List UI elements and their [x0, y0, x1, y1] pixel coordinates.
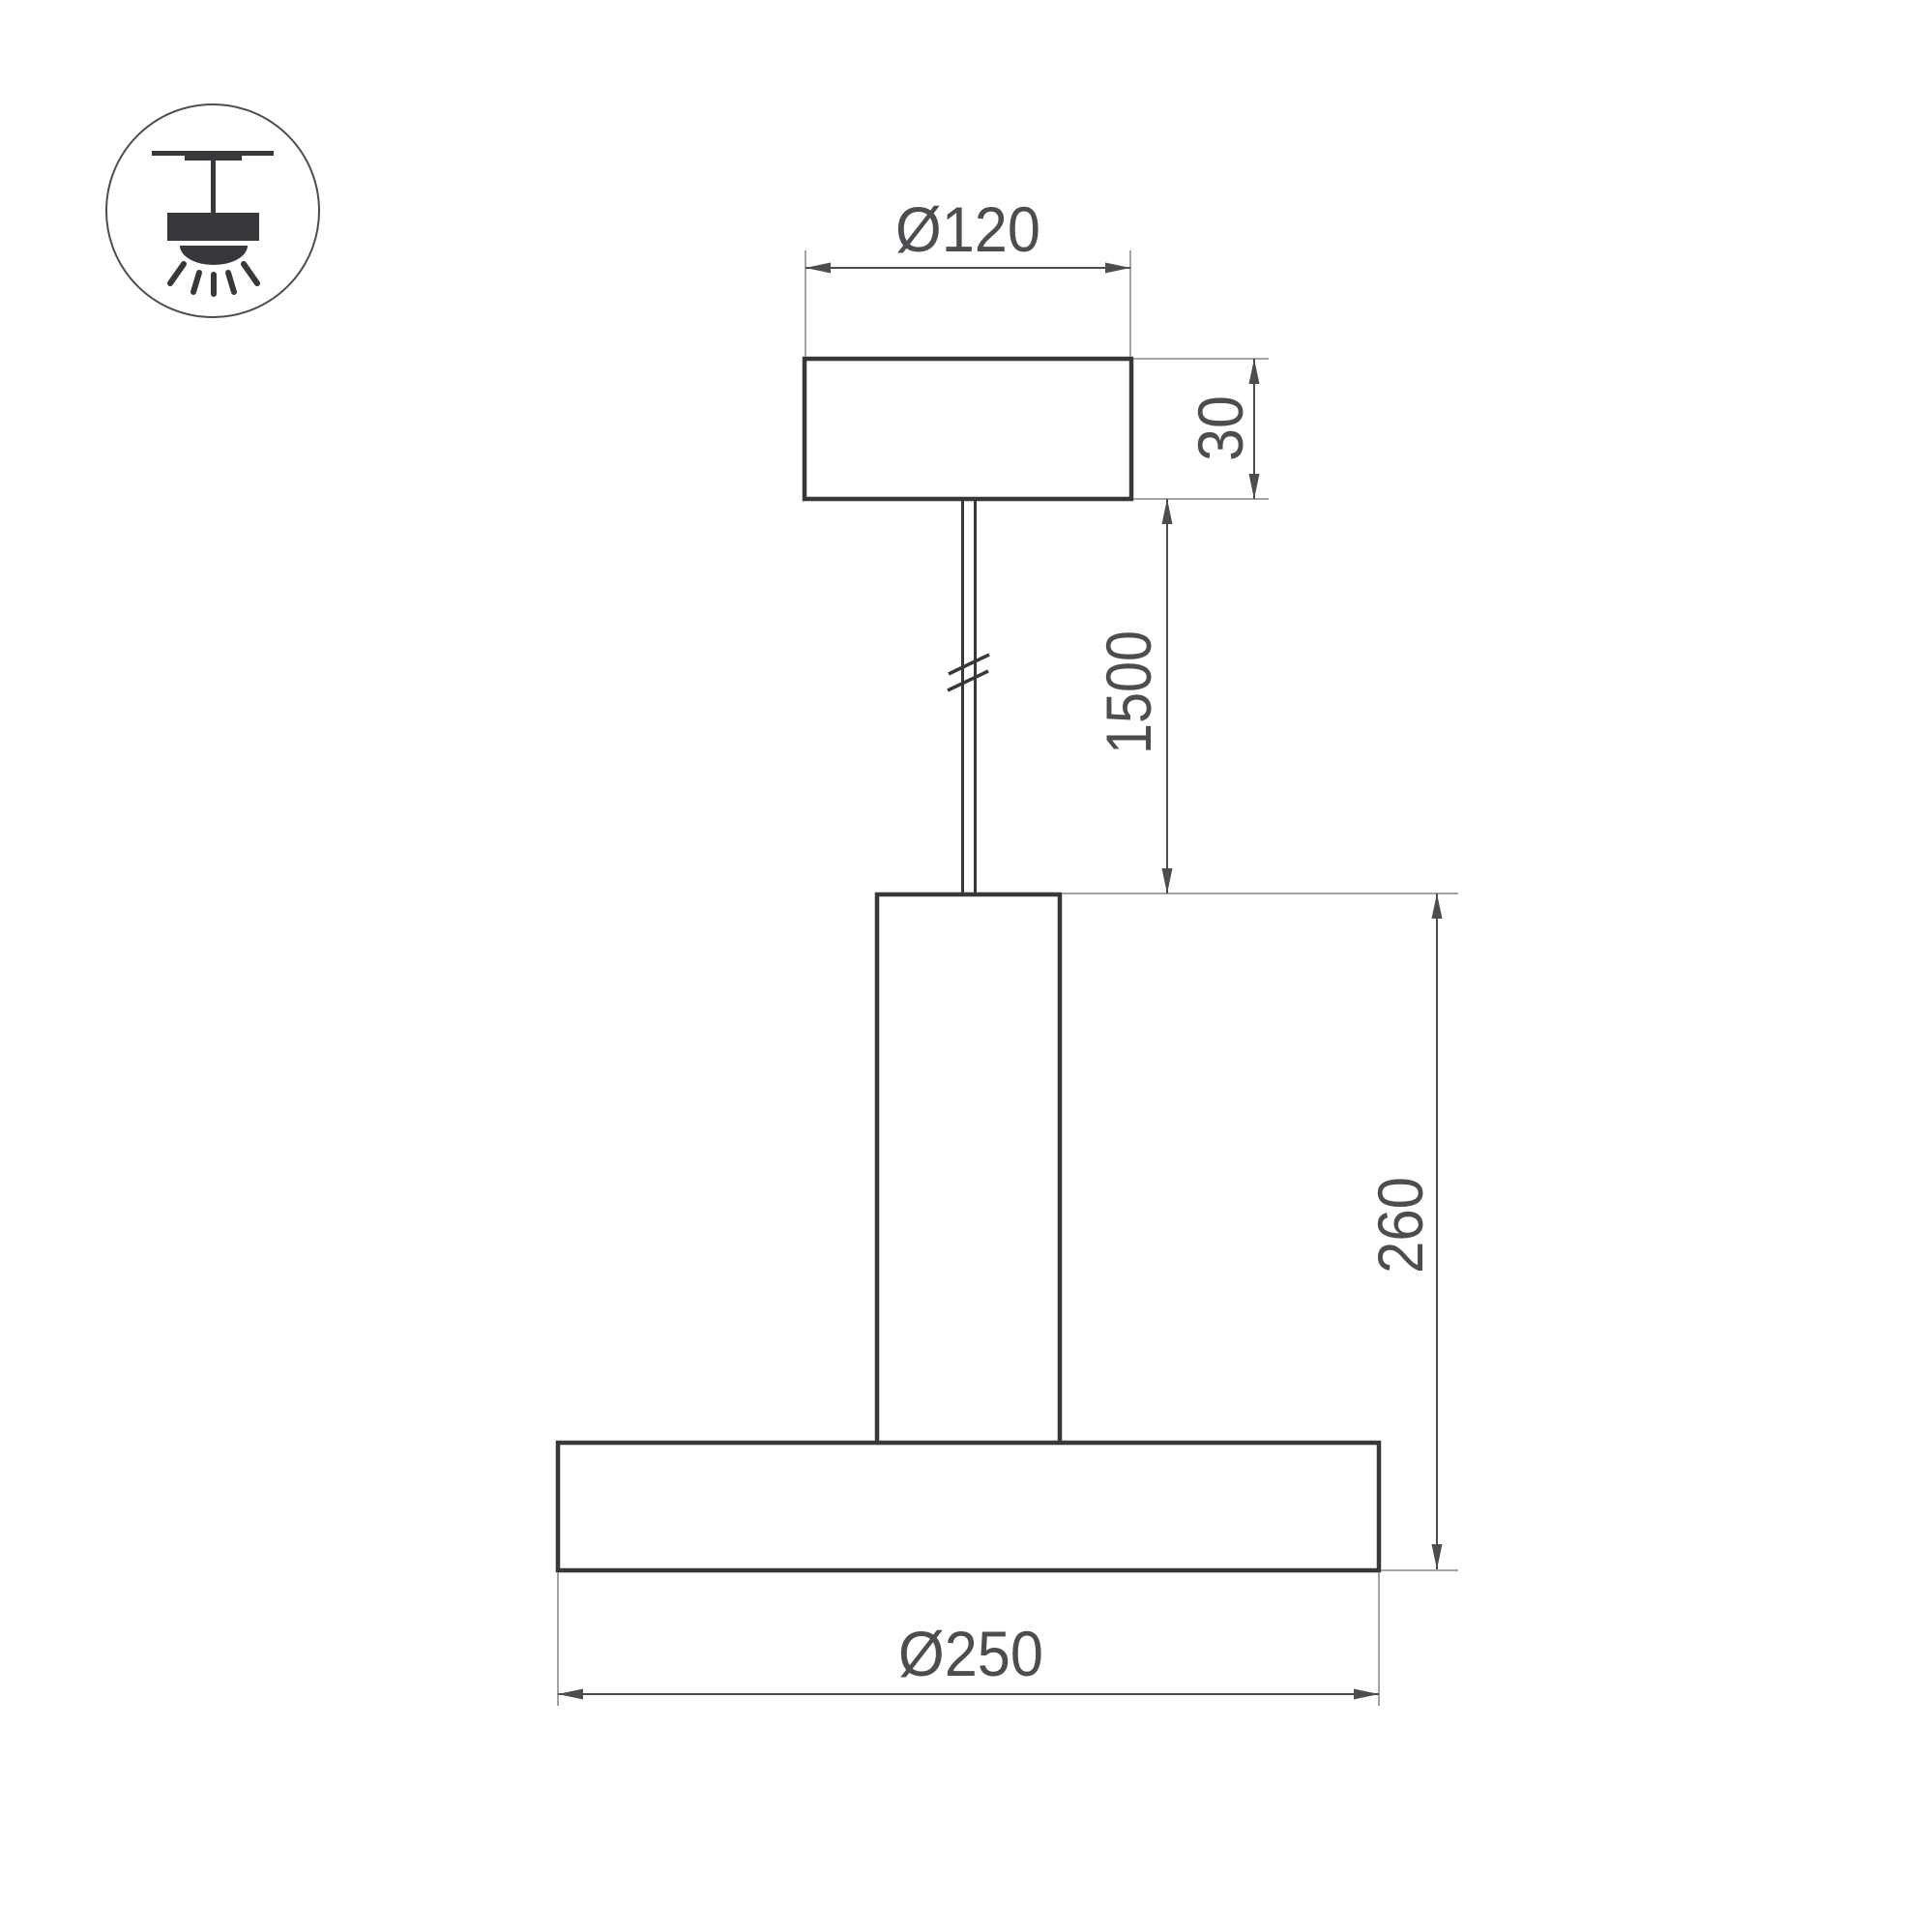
drawing-canvas: Ø120 30 1500 260 Ø250 [0, 0, 1932, 1932]
light-ray-icon [244, 264, 257, 283]
light-ray-icon [228, 273, 234, 292]
luminaire-outline [558, 359, 1379, 1570]
suspension-length-label: 1500 [1093, 630, 1164, 754]
dimension-canopy-diameter: Ø120 [805, 193, 1130, 274]
arrow-right [1354, 1689, 1379, 1700]
light-ray-icon [170, 264, 184, 283]
ceiling-pendant-mount-icon [106, 104, 319, 317]
shade-diameter-label: Ø250 [898, 1618, 1043, 1689]
light-ray-icon [193, 273, 199, 292]
cable-break-mark [948, 655, 989, 690]
lamp-shade-disk [558, 1443, 1379, 1570]
arrow-down [1162, 868, 1173, 893]
arrow-right [1105, 263, 1130, 274]
icon-lamp-dome [180, 246, 248, 265]
pendant-lamp-dimension-drawing: Ø120 30 1500 260 Ø250 [0, 0, 1932, 1932]
arrow-left [805, 263, 831, 274]
arrow-up [1249, 359, 1260, 384]
arrow-down [1432, 1544, 1443, 1569]
arrow-left [558, 1689, 583, 1700]
icon-light-rays [170, 264, 257, 294]
break-slash [948, 671, 988, 690]
canopy-height-label: 30 [1185, 395, 1256, 461]
dimension-shade-diameter: Ø250 [558, 1618, 1379, 1700]
lamp-body-cylinder [877, 894, 1060, 1445]
arrow-down [1249, 474, 1260, 499]
arrow-up [1162, 499, 1173, 524]
icon-suspension-rod [211, 159, 216, 215]
dimension-canopy-height: 30 [1185, 359, 1260, 499]
break-slash [949, 655, 989, 674]
ceiling-canopy [805, 359, 1131, 499]
canopy-diameter-label: Ø120 [895, 193, 1040, 265]
arrow-up [1432, 893, 1443, 919]
icon-lamp-shade [167, 213, 259, 241]
dimension-suspension-length: 1500 [1093, 499, 1173, 893]
body-height-label: 260 [1364, 1177, 1436, 1273]
